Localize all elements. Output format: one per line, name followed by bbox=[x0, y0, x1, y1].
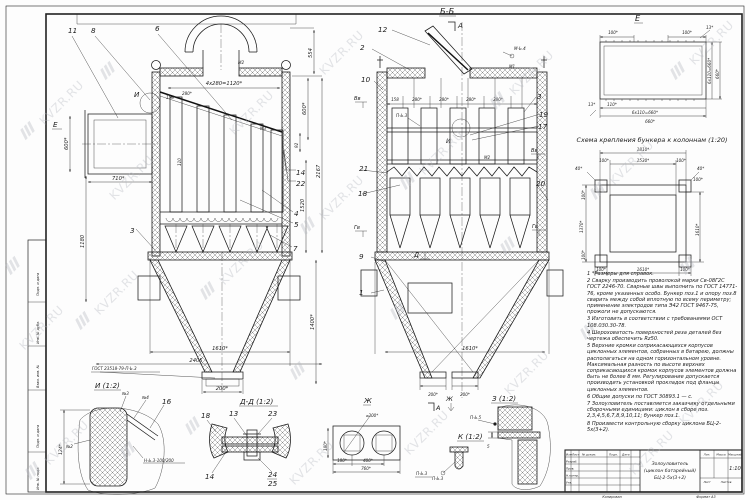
dim: 280* bbox=[439, 97, 449, 102]
dim: 4х280=1120* bbox=[206, 81, 243, 87]
pos-number: 10 bbox=[361, 75, 371, 84]
dim: 554 bbox=[308, 48, 314, 58]
front-view: 4х280=1120* 158 280* 110 600* 710* 1180 … bbox=[52, 16, 322, 394]
dim: 1370* bbox=[579, 221, 584, 233]
dim: 660* bbox=[645, 119, 655, 124]
pos-number: 3 bbox=[537, 92, 542, 101]
dim: 110* bbox=[607, 102, 617, 107]
insulation-block bbox=[90, 408, 127, 486]
scheme-title: Схема крепления бункера к колоннам (1:20… bbox=[576, 136, 727, 144]
pos-number: 20 bbox=[536, 179, 546, 188]
pos-number: 16 bbox=[162, 397, 172, 406]
watermark: KVZR.RU bbox=[17, 303, 67, 353]
hopper-wall-right bbox=[233, 260, 290, 372]
tb-col: Лист bbox=[571, 453, 580, 457]
dim: 158 bbox=[166, 95, 174, 100]
weld-mark: М-Ь.4 bbox=[514, 46, 526, 51]
tb-col: Листов bbox=[720, 480, 732, 484]
marker-gv-right: Гв bbox=[532, 224, 538, 230]
note-item: 3 Изготовить в соответствии с требования… bbox=[587, 316, 739, 328]
dim: ⌀300* bbox=[366, 413, 378, 418]
dim: 180* bbox=[337, 458, 347, 463]
pos-number: 1 bbox=[359, 288, 364, 297]
drawing-sheet: { "watermark": {"text": "KVZR.RU"}, "she… bbox=[0, 0, 750, 500]
dim: 100* bbox=[682, 30, 692, 35]
section-wall-left bbox=[377, 72, 387, 252]
watermark: KVZR.RU bbox=[73, 266, 142, 335]
dim: 400* bbox=[363, 458, 373, 463]
watermark-text: KVZR.RU bbox=[317, 28, 367, 78]
tb-scale-value: 1:10 bbox=[729, 466, 741, 472]
weld-mark: П-Ь.3 bbox=[432, 476, 444, 481]
dim: 200* bbox=[428, 392, 438, 397]
dim: 100* bbox=[599, 158, 609, 163]
dim: 92 bbox=[294, 142, 299, 148]
view-marker-zh: Ж bbox=[445, 395, 454, 403]
view-title: Ж bbox=[363, 396, 372, 405]
watermark: KVZR.RU bbox=[18, 76, 87, 145]
tb-row: Разраб. bbox=[566, 460, 577, 464]
watermark bbox=[3, 256, 22, 275]
dim: 6х110=660* bbox=[707, 58, 712, 84]
tb-col: Масса bbox=[716, 453, 725, 457]
pos-number: 23 bbox=[268, 409, 278, 418]
dim: 100* bbox=[581, 250, 586, 260]
hopper-hatch bbox=[408, 283, 452, 313]
dim: 1610* bbox=[212, 346, 228, 352]
note-item: 4 Шероховатость поверхностей реза детале… bbox=[587, 330, 739, 342]
watermark-text: KVZR.RU bbox=[502, 348, 552, 398]
detail-marker-i: И bbox=[134, 90, 140, 99]
pos-number: 25 bbox=[268, 479, 278, 488]
detail-title: К (1:2) bbox=[458, 432, 483, 441]
tb-footer-copy: Копировал bbox=[602, 495, 622, 499]
watermark: KVZR.RU bbox=[287, 438, 337, 488]
tb-col: Лит. bbox=[703, 453, 711, 457]
watermark-text: KVZR.RU bbox=[227, 88, 277, 138]
dim: 100* bbox=[676, 158, 686, 163]
tb-col: Подп. bbox=[609, 453, 618, 457]
dim: 13* bbox=[706, 25, 713, 30]
dim: 1180 bbox=[80, 234, 86, 248]
watermark bbox=[288, 361, 307, 380]
tb-col: № докум. bbox=[581, 453, 596, 457]
pos-number: 19 bbox=[539, 110, 549, 119]
doc-title-line3: БЦ-2-5х(3+2) bbox=[654, 475, 686, 481]
weld-note: ГОСТ 23518-79-П-Ь.3 bbox=[92, 366, 137, 371]
note-item: 2 Сварку производить проволокой марки Св… bbox=[587, 278, 739, 315]
watermark-text: KVZR.RU bbox=[37, 78, 87, 128]
marker-gv-left: Гв bbox=[354, 225, 360, 231]
hopper-wall-left bbox=[150, 260, 212, 372]
note-item: 6 Общие допуски по ГОСТ 30893.1 — с. bbox=[587, 394, 739, 400]
watermark: KVZR.RU bbox=[227, 88, 277, 138]
watermark bbox=[98, 61, 117, 80]
tb-col: Масштаб bbox=[728, 453, 742, 457]
watermark-text: KVZR.RU bbox=[217, 238, 267, 288]
watermark-text: KVZR.RU bbox=[287, 438, 337, 488]
watermark: KVZR.RU bbox=[402, 408, 452, 458]
dim: 110 bbox=[177, 158, 182, 166]
dim: 660* bbox=[715, 69, 720, 79]
dim: 6х110=660* bbox=[632, 110, 658, 115]
cyclone-cones-front bbox=[165, 224, 288, 254]
dim: 40* bbox=[575, 166, 582, 171]
dim: 280* bbox=[412, 97, 422, 102]
weld-mark: М2 bbox=[484, 155, 491, 160]
dim: 100* bbox=[608, 30, 618, 35]
stamp-label: Взам. инв. № bbox=[36, 365, 40, 388]
dim: 1610* bbox=[462, 346, 478, 352]
dim: 600* bbox=[64, 137, 70, 150]
dim: 1520 bbox=[300, 198, 306, 212]
section-title: Б-Б bbox=[440, 6, 455, 16]
detail-title: Д-Д (1:2) bbox=[239, 397, 273, 406]
technical-notes: 1 *Размеры для справок. 2 Сварку произво… bbox=[587, 271, 739, 434]
detail-title: Е bbox=[635, 13, 641, 23]
pos-number: 13 bbox=[229, 409, 239, 418]
detail-k: К (1:2) П-Ь.3 bbox=[432, 432, 484, 481]
note-item: 1 *Размеры для справок. bbox=[587, 271, 739, 277]
weld-mark: №3 bbox=[121, 391, 129, 396]
tb-col: Дата bbox=[621, 453, 630, 457]
weld-mark: П-Ь.5 bbox=[470, 415, 482, 420]
watermark: KVZR.RU bbox=[588, 136, 657, 205]
pos-number: 17 bbox=[538, 122, 548, 131]
marker-vv-right: Вв bbox=[531, 148, 538, 154]
weld-mark: П-Ь.3 bbox=[396, 113, 408, 118]
weld-note: П-Ь.3 bbox=[416, 471, 428, 476]
tb-row: Н.контр. bbox=[566, 474, 579, 478]
detail-marker-d: Д bbox=[413, 251, 419, 259]
weld-mark: М3 bbox=[260, 126, 267, 131]
pos-number: 6 bbox=[155, 24, 160, 33]
dim: 200* bbox=[216, 386, 229, 392]
dim: 280* bbox=[466, 97, 476, 102]
dim: 100* bbox=[693, 177, 703, 182]
pos-number: 2 bbox=[360, 43, 365, 52]
weld-mark: М2 bbox=[238, 60, 245, 65]
pos-number: 11 bbox=[68, 26, 77, 35]
pos-number: 14 bbox=[296, 168, 306, 177]
note-item: 7 Золоуловитель поставляется заказчику о… bbox=[587, 401, 739, 420]
detail-e: Е 100* 100* 13* 6х110=660* 660* 13* 110*… bbox=[588, 13, 722, 124]
stamp-label: Подп. и дата bbox=[36, 273, 40, 296]
watermark: KVZR.RU bbox=[317, 28, 367, 78]
corner-columns bbox=[595, 180, 691, 267]
pos-number: 8 bbox=[91, 26, 96, 35]
watermark: KVZR.RU bbox=[502, 348, 552, 398]
dim: 100* bbox=[581, 190, 586, 200]
dim: 200* bbox=[460, 392, 470, 397]
pos-number: 24 bbox=[268, 470, 278, 479]
pos-number: 22 bbox=[296, 179, 306, 188]
marker-vv-left: Вв bbox=[354, 96, 361, 102]
pos-number: 9 bbox=[359, 252, 364, 261]
dim: 600* bbox=[302, 102, 308, 115]
tb-col: Лист bbox=[702, 480, 711, 484]
detail-title: И (1:2) bbox=[95, 381, 120, 390]
pos-number: 4 bbox=[294, 209, 299, 218]
note-item: 5 Верхние кромки соприкасающихся корпусо… bbox=[587, 343, 739, 393]
watermark-text: KVZR.RU bbox=[17, 303, 67, 353]
note-item: 8 Произвести контрольную сборку циклона … bbox=[587, 421, 739, 433]
watermark-text: KVZR.RU bbox=[42, 418, 92, 468]
dim: 1400* bbox=[310, 314, 316, 330]
pos-number: 7 bbox=[293, 244, 298, 253]
watermark-text: KVZR.RU bbox=[92, 268, 142, 318]
dim: 1610* bbox=[695, 224, 700, 236]
pos-number: 12 bbox=[378, 25, 388, 34]
stamp-label: Подп. и дата bbox=[36, 425, 40, 448]
dim: 280* bbox=[182, 91, 192, 96]
pos-number: 18 bbox=[201, 411, 211, 420]
dim: 5 bbox=[487, 444, 490, 449]
doc-title-line2: (циклон батарейный) bbox=[644, 468, 696, 474]
dim: 760* bbox=[361, 466, 371, 471]
tb-footer-format: Формат А3 bbox=[696, 495, 715, 499]
detail-dd: Д-Д (1:2) 18 13 23 14 24 25 bbox=[201, 397, 290, 488]
watermark-text: KVZR.RU bbox=[402, 408, 452, 458]
pos-number: 14 bbox=[205, 472, 215, 481]
weld-note: Н-Ь.3-100/200 bbox=[144, 458, 174, 463]
mounting-scheme: Схема крепления бункера к колоннам (1:20… bbox=[575, 136, 728, 276]
pos-number: 21 bbox=[359, 164, 368, 173]
tb-row: Пров. bbox=[566, 467, 574, 471]
dim: 2167 bbox=[316, 164, 322, 178]
dim: 2405 bbox=[189, 358, 203, 364]
detail-z: З (1:2) П-Ь.5 5 bbox=[470, 394, 550, 490]
pos-number: 18 bbox=[358, 189, 368, 198]
doc-title-line1: Золоуловитель bbox=[652, 461, 689, 467]
weld-mark: №4 bbox=[141, 395, 149, 400]
dim: 13* bbox=[588, 102, 595, 107]
weld-mark: М1 bbox=[509, 64, 515, 69]
pos-number: 3 bbox=[130, 226, 135, 235]
dim: 40* bbox=[697, 166, 704, 171]
view-marker-e: Е bbox=[53, 120, 58, 129]
tb-row: Утв. bbox=[566, 481, 572, 485]
pos-number: 5 bbox=[294, 220, 299, 229]
dim: 158 bbox=[391, 97, 399, 102]
watermark bbox=[183, 416, 202, 435]
